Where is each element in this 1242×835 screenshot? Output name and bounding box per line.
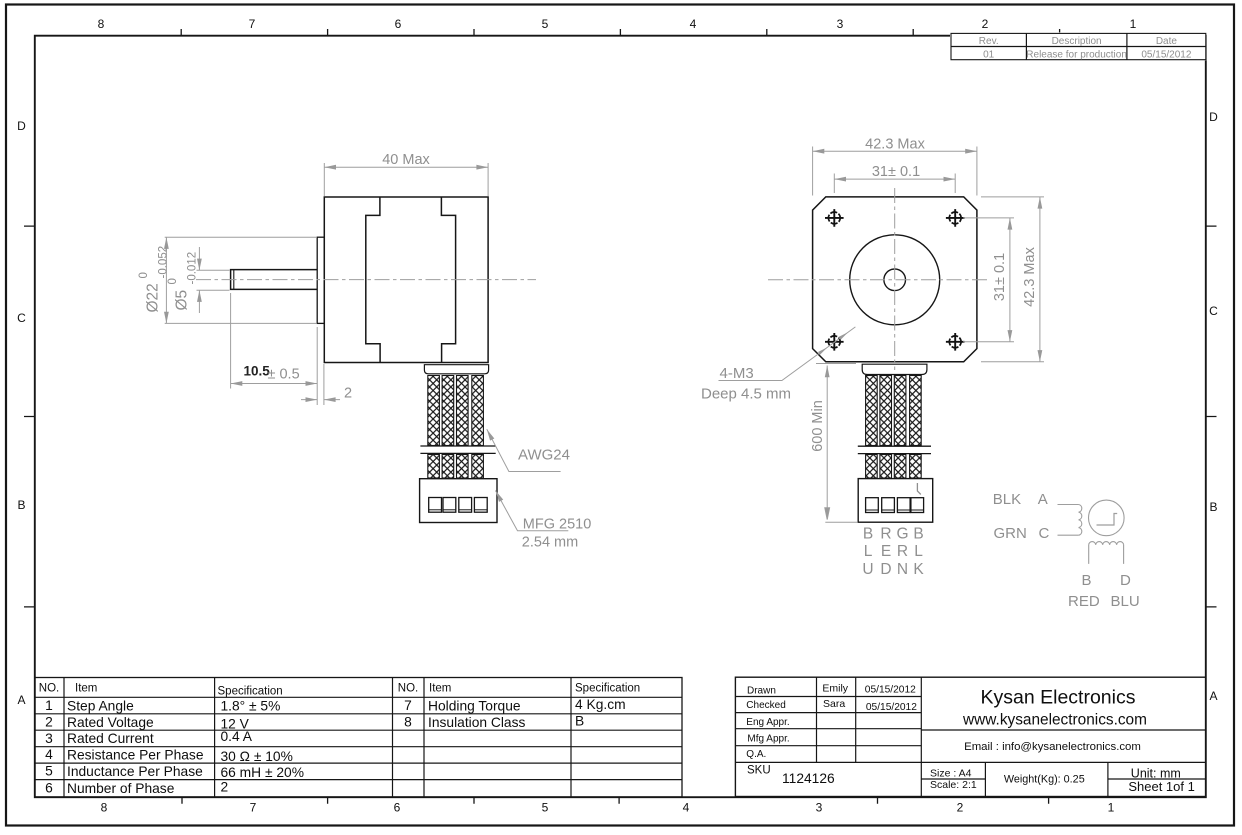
svg-text:C: C (1209, 304, 1218, 318)
svg-text:L: L (864, 543, 873, 560)
svg-text:MFG 2510: MFG 2510 (523, 516, 592, 532)
svg-text:B: B (575, 713, 584, 728)
svg-text:Drawn: Drawn (747, 685, 776, 696)
svg-text:Scale: 2:1: Scale: 2:1 (930, 779, 977, 791)
svg-text:Mfg Appr.: Mfg Appr. (747, 733, 789, 744)
svg-text:www.kysanelectronics.com: www.kysanelectronics.com (962, 712, 1147, 729)
svg-text:2: 2 (221, 780, 229, 795)
svg-text:30 Ω ± 10%: 30 Ω ± 10% (221, 749, 293, 764)
svg-text:Emily: Emily (822, 682, 848, 694)
svg-text:42.3 Max: 42.3 Max (1022, 246, 1038, 306)
svg-text:31± 0.1: 31± 0.1 (872, 164, 920, 180)
svg-text:2: 2 (45, 714, 53, 729)
svg-text:-0.012: -0.012 (187, 252, 199, 285)
svg-text:BLU: BLU (1111, 593, 1140, 610)
svg-text:Item: Item (429, 683, 451, 695)
svg-text:1: 1 (1108, 801, 1115, 815)
svg-text:Sara: Sara (823, 698, 845, 710)
svg-text:Rated Voltage: Rated Voltage (67, 715, 154, 730)
svg-text:A: A (1209, 689, 1217, 703)
svg-text:5: 5 (542, 17, 549, 31)
svg-text:Resistance Per Phase: Resistance Per Phase (67, 748, 204, 763)
svg-text:3: 3 (837, 17, 844, 31)
svg-text:C: C (17, 311, 26, 325)
svg-text:2.54 mm: 2.54 mm (522, 535, 578, 551)
svg-text:A: A (1038, 491, 1048, 508)
svg-text:NO.: NO. (39, 683, 59, 695)
svg-text:B: B (863, 526, 873, 543)
svg-text:BLK: BLK (993, 491, 1021, 508)
svg-text:2: 2 (344, 386, 352, 402)
svg-text:3: 3 (45, 731, 53, 746)
svg-text:Size : A4: Size : A4 (930, 768, 972, 780)
svg-text:0.4 A: 0.4 A (221, 729, 253, 744)
svg-text:7: 7 (404, 698, 412, 713)
svg-text:AWG24: AWG24 (518, 447, 570, 464)
svg-text:D: D (880, 561, 891, 578)
svg-text:Sheet 1of 1: Sheet 1of 1 (1128, 779, 1195, 794)
svg-text:Q.A.: Q.A. (746, 749, 766, 760)
svg-text:6: 6 (395, 17, 402, 31)
svg-text:05/15/2012: 05/15/2012 (866, 702, 917, 713)
svg-text:Ø22: Ø22 (144, 283, 161, 312)
svg-text:A: A (17, 693, 25, 707)
svg-text:0: 0 (167, 278, 179, 284)
svg-text:Specification: Specification (218, 686, 283, 698)
svg-text:8: 8 (404, 714, 412, 729)
svg-text:B: B (1209, 500, 1217, 514)
svg-text:-0.052: -0.052 (157, 246, 169, 279)
svg-text:± 0.5: ± 0.5 (268, 367, 300, 383)
svg-text:1: 1 (45, 698, 53, 713)
svg-text:SKU: SKU (747, 765, 771, 777)
svg-text:10.5: 10.5 (244, 364, 271, 379)
svg-text:4-M3: 4-M3 (720, 365, 754, 382)
svg-text:40 Max: 40 Max (382, 152, 430, 168)
svg-text:Email : info@kysanelectronics.: Email : info@kysanelectronics.com (964, 741, 1141, 753)
svg-text:Step Angle: Step Angle (67, 698, 134, 713)
svg-text:600 Min: 600 Min (810, 400, 826, 452)
svg-text:1.8° ± 5%: 1.8° ± 5% (221, 698, 281, 713)
svg-text:Kysan Electronics: Kysan Electronics (981, 687, 1136, 709)
svg-text:B: B (913, 526, 923, 543)
svg-text:4: 4 (690, 17, 697, 31)
svg-text:7: 7 (249, 17, 256, 31)
svg-text:Ø5: Ø5 (174, 290, 191, 311)
svg-text:Rated Current: Rated Current (67, 731, 154, 746)
svg-text:Inductance Per Phase: Inductance Per Phase (67, 764, 203, 779)
svg-text:1124126: 1124126 (782, 771, 835, 786)
svg-text:1: 1 (1130, 17, 1137, 31)
svg-text:8: 8 (98, 17, 105, 31)
svg-text:R: R (880, 526, 891, 543)
svg-text:42.3 Max: 42.3 Max (865, 136, 925, 152)
svg-text:D: D (1120, 572, 1131, 589)
svg-text:05/15/2012: 05/15/2012 (865, 685, 916, 696)
svg-text:4: 4 (45, 747, 53, 762)
svg-text:NO.: NO. (398, 683, 418, 695)
svg-text:8: 8 (101, 801, 108, 815)
svg-text:2: 2 (957, 801, 964, 815)
svg-text:4 Kg.cm: 4 Kg.cm (575, 697, 626, 712)
svg-text:N: N (897, 561, 908, 578)
svg-text:Description: Description (1052, 36, 1102, 47)
svg-text:Release for production: Release for production (1026, 49, 1127, 60)
svg-text:7: 7 (250, 801, 257, 815)
svg-text:Rev.: Rev. (979, 36, 999, 47)
svg-text:B: B (1082, 572, 1092, 589)
svg-text:D: D (1209, 110, 1218, 124)
svg-text:31± 0.1: 31± 0.1 (992, 253, 1008, 301)
svg-text:GRN: GRN (994, 525, 1027, 542)
svg-text:0: 0 (138, 272, 150, 278)
svg-text:4: 4 (683, 801, 690, 815)
svg-text:66 mH ± 20%: 66 mH ± 20% (221, 765, 305, 780)
svg-text:L: L (914, 543, 923, 560)
svg-text:E: E (881, 543, 891, 560)
svg-text:5: 5 (542, 801, 549, 815)
svg-text:Checked: Checked (746, 700, 785, 711)
svg-text:Eng Appr.: Eng Appr. (746, 717, 789, 728)
svg-text:Item: Item (75, 683, 97, 695)
svg-text:C: C (1039, 525, 1050, 542)
svg-text:Specification: Specification (575, 683, 640, 695)
svg-text:K: K (913, 561, 924, 578)
svg-text:B: B (17, 498, 25, 512)
svg-text:Deep 4.5 mm: Deep 4.5 mm (701, 386, 791, 403)
svg-text:Date: Date (1156, 36, 1178, 47)
svg-text:Number of Phase: Number of Phase (67, 781, 175, 796)
svg-text:G: G (896, 526, 908, 543)
svg-text:01: 01 (983, 49, 995, 60)
svg-text:RED: RED (1068, 593, 1100, 610)
svg-text:D: D (17, 119, 26, 133)
svg-text:Insulation Class: Insulation Class (428, 715, 525, 730)
svg-text:05/15/2012: 05/15/2012 (1141, 49, 1191, 60)
svg-text:5: 5 (45, 764, 53, 779)
svg-text:6: 6 (394, 801, 401, 815)
svg-text:U: U (862, 561, 873, 578)
svg-text:6: 6 (45, 781, 53, 796)
svg-text:2: 2 (982, 17, 989, 31)
svg-text:Weight(Kg): 0.25: Weight(Kg): 0.25 (1004, 774, 1085, 786)
svg-text:Holding Torque: Holding Torque (428, 698, 521, 713)
svg-text:3: 3 (816, 801, 823, 815)
svg-text:R: R (897, 543, 908, 560)
